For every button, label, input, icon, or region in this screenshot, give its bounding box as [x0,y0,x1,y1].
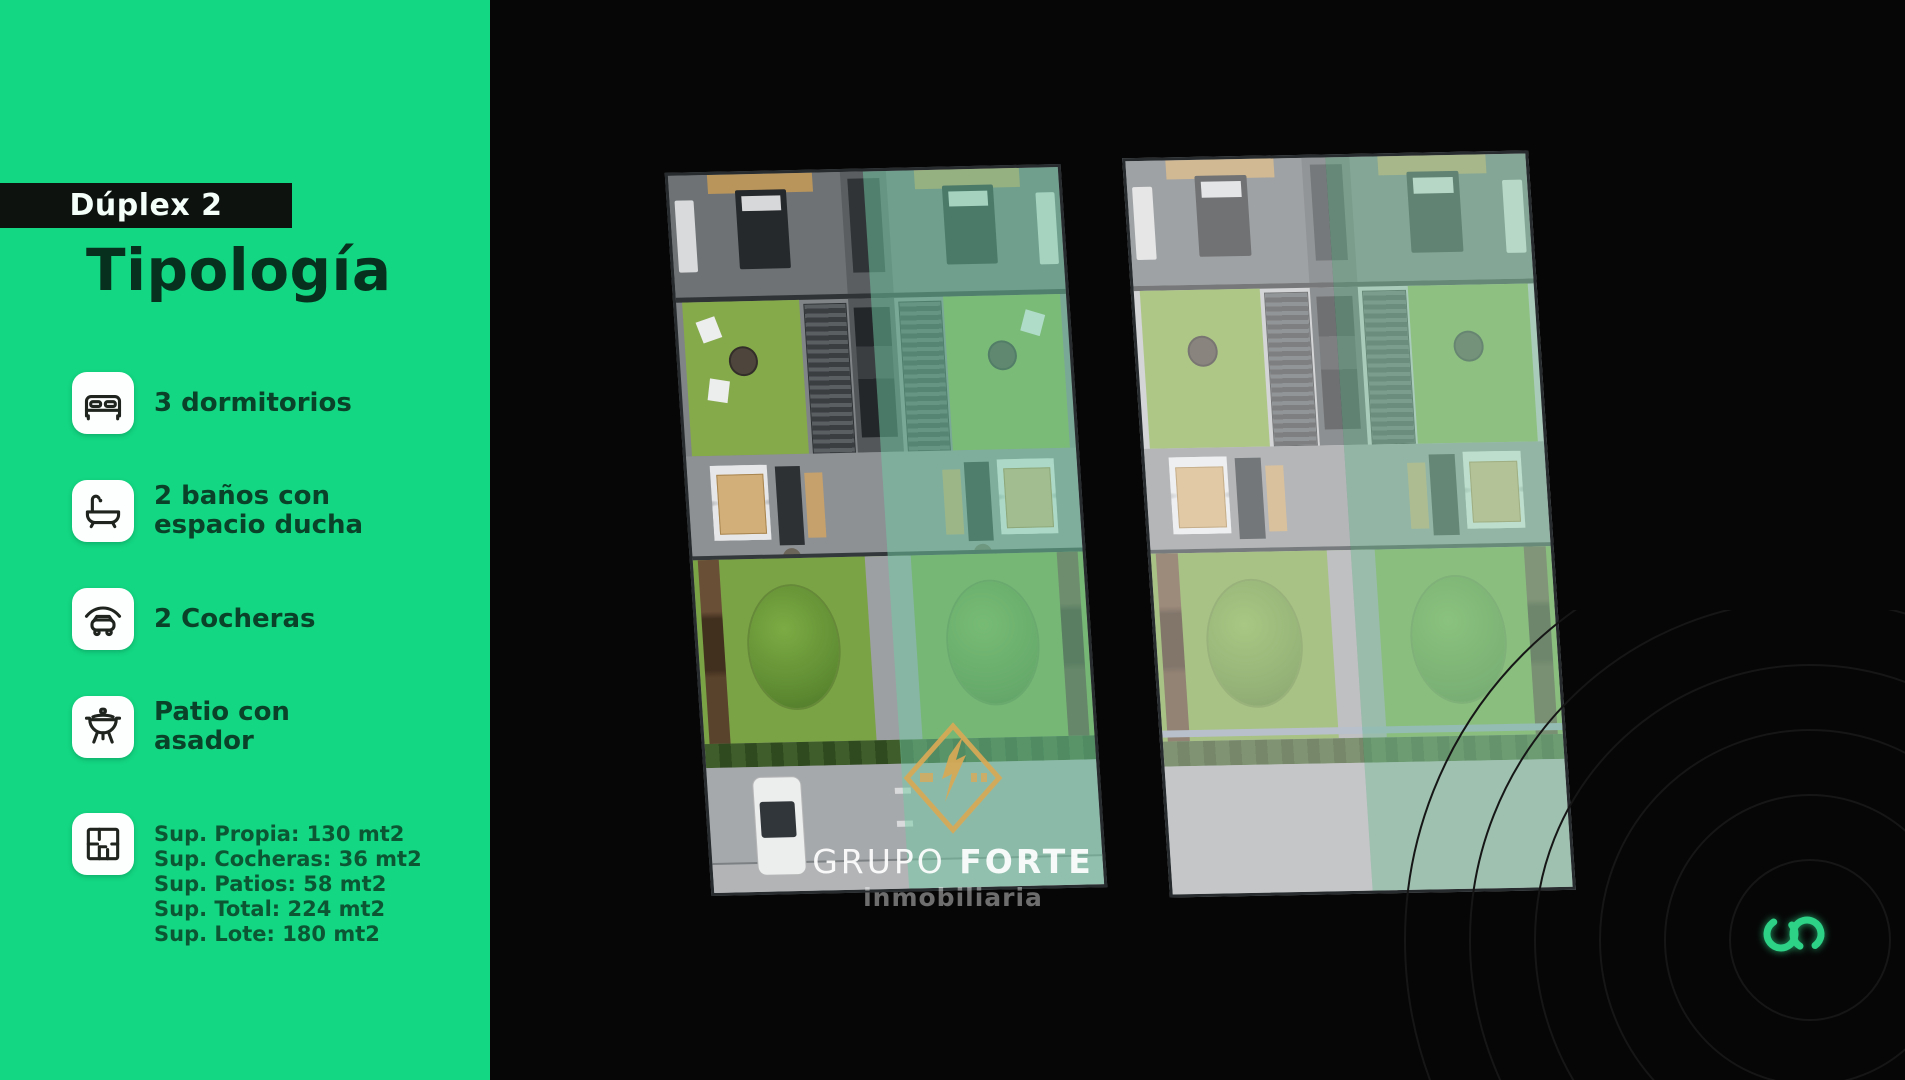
slide: Dúplex 2 Tipología 3 dormitorios [0,0,1905,1080]
surface-line: Sup. Lote: 180 mt2 [154,922,422,947]
page-title: Tipología [86,236,392,304]
surface-summary: Sup. Propia: 130 mt2 Sup. Cocheras: 36 m… [72,813,422,947]
surface-lines: Sup. Propia: 130 mt2 Sup. Cocheras: 36 m… [154,822,422,947]
feature-garages-label: 2 Cocheras [154,605,315,634]
feature-line: asador [154,727,290,756]
surface-line: Sup. Cocheras: 36 mt2 [154,847,422,872]
surface-line: Sup. Total: 224 mt2 [154,897,422,922]
feature-patio-label: Patio con asador [154,698,290,756]
surface-line: Sup. Patios: 58 mt2 [154,872,422,897]
car-windshield [759,801,796,838]
feature-line: espacio ducha [154,511,363,540]
concentric-rings-decor [1385,610,1905,1080]
staircase [803,303,856,455]
duplex-badge: Dúplex 2 [0,183,292,228]
dining-table [716,474,767,534]
floor-plan-left [665,164,1108,896]
feature-patio: Patio con asador [72,696,290,758]
corner-logo-icon [1752,898,1836,970]
garage-icon [72,588,134,650]
grill-icon [72,696,134,758]
feature-bathrooms-label: 2 baños con espacio ducha [154,482,363,540]
feature-bathrooms: 2 baños con espacio ducha [72,480,363,542]
floorplan-icon [72,813,134,875]
feature-bedrooms-label: 3 dormitorios [154,389,352,418]
pillow [741,195,781,212]
feature-line: 2 baños con [154,482,363,511]
feature-bedrooms: 3 dormitorios [72,372,352,434]
sidebar: Dúplex 2 Tipología 3 dormitorios [0,0,490,1080]
duplex-badge-label: Dúplex 2 [69,188,222,223]
feature-line: Patio con [154,698,290,727]
feature-garages: 2 Cocheras [72,588,315,650]
bed-icon [72,372,134,434]
feature-line: 2 Cocheras [154,605,315,634]
feature-line: 3 dormitorios [154,389,352,418]
bathtub-icon [72,480,134,542]
lounge-chair [708,378,730,402]
kitchen-island [775,466,805,545]
surface-line: Sup. Propia: 130 mt2 [154,822,422,847]
